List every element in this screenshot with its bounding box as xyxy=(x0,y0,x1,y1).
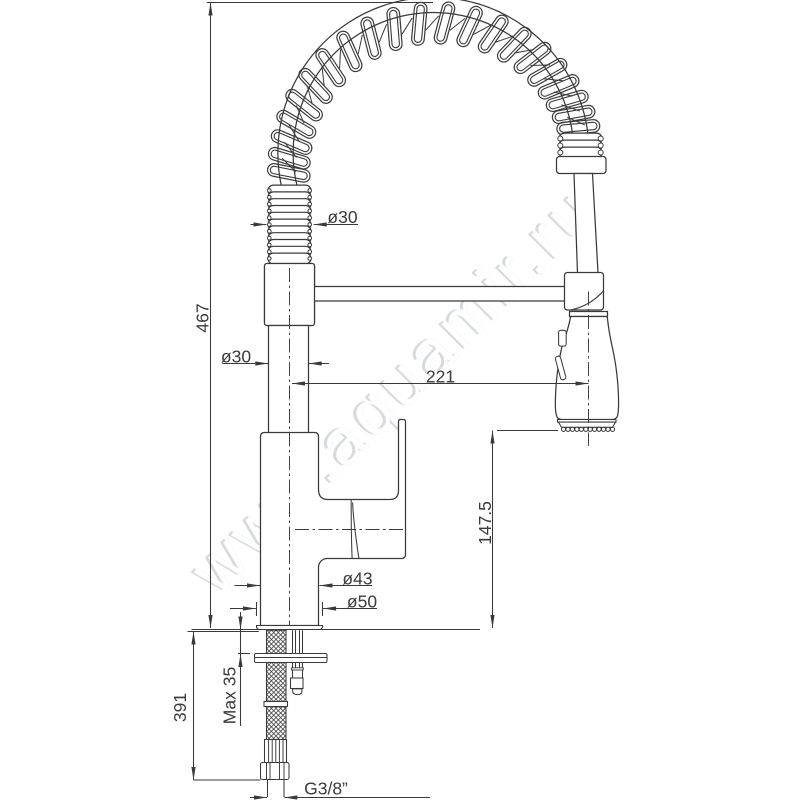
svg-text:467: 467 xyxy=(193,303,213,332)
svg-text:ø30: ø30 xyxy=(327,207,357,227)
svg-text:Max 35: Max 35 xyxy=(220,667,240,724)
svg-text:391: 391 xyxy=(170,693,190,722)
svg-text:221: 221 xyxy=(426,366,455,386)
svg-text:ø43: ø43 xyxy=(342,568,372,588)
svg-text:ø30: ø30 xyxy=(221,347,251,367)
svg-text:147.5: 147.5 xyxy=(475,501,495,545)
svg-text:ø50: ø50 xyxy=(347,591,377,611)
svg-text:G3/8”: G3/8” xyxy=(304,778,348,798)
